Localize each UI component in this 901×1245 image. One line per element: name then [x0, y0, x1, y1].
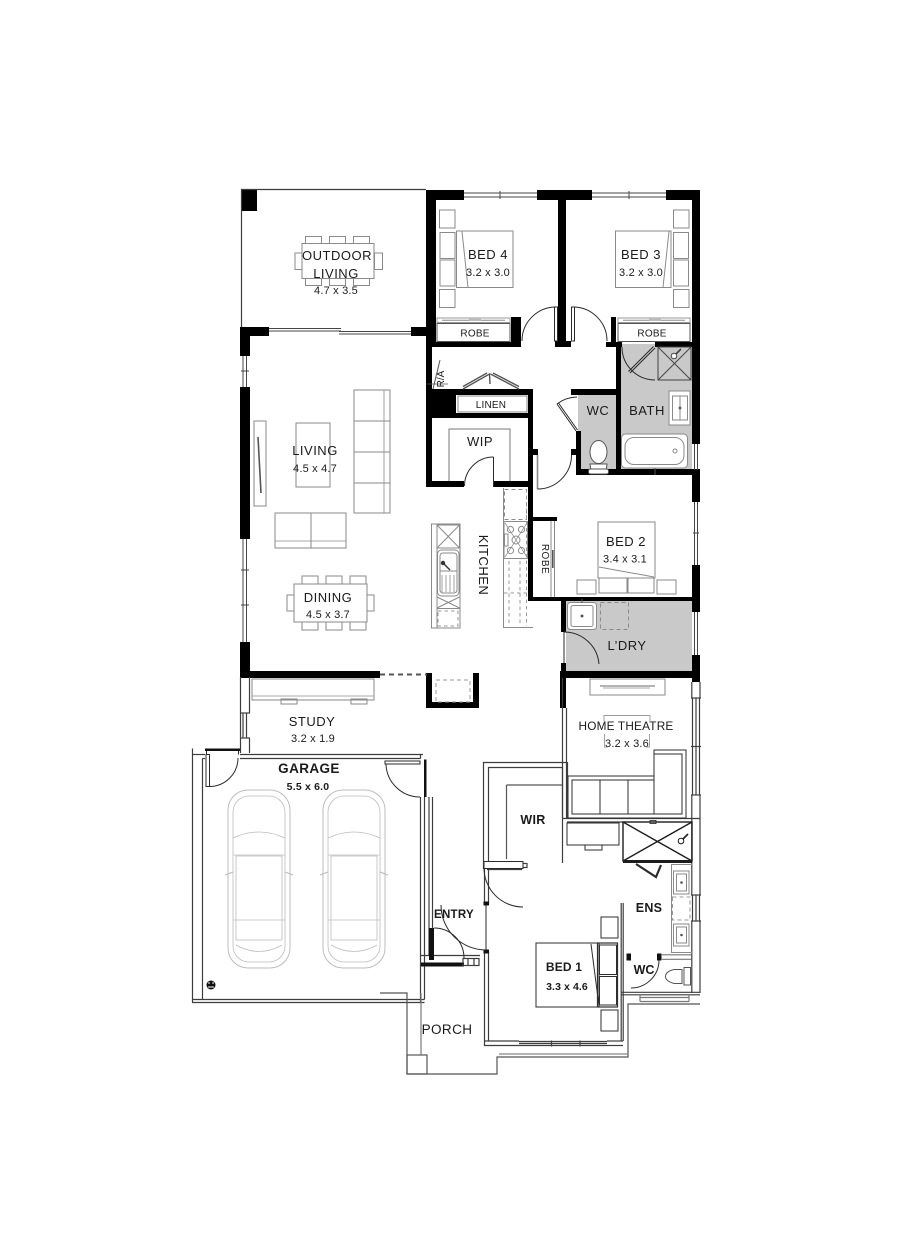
svg-text:ENS: ENS	[636, 901, 663, 915]
svg-text:4.5 x 4.7: 4.5 x 4.7	[293, 463, 337, 475]
svg-text:L’DRY: L’DRY	[607, 638, 646, 653]
svg-text:WIP: WIP	[467, 434, 493, 449]
svg-text:WC: WC	[587, 403, 610, 418]
svg-text:BED 3: BED 3	[621, 247, 661, 262]
svg-text:ROBE: ROBE	[460, 329, 489, 340]
svg-text:ROBE: ROBE	[539, 544, 550, 574]
svg-text:3.2 x 3.0: 3.2 x 3.0	[619, 267, 663, 279]
svg-text:3.2 x 3.6: 3.2 x 3.6	[605, 738, 649, 750]
svg-text:LINEN: LINEN	[476, 400, 506, 411]
svg-text:WIR: WIR	[520, 813, 545, 827]
svg-text:PORCH: PORCH	[422, 1022, 473, 1037]
svg-text:BED 1: BED 1	[546, 960, 582, 974]
svg-text:5.5 x 6.0: 5.5 x 6.0	[287, 781, 330, 793]
svg-text:3.2 x 1.9: 3.2 x 1.9	[291, 733, 335, 745]
svg-text:R/A: R/A	[436, 370, 447, 387]
svg-text:3.3 x 4.6: 3.3 x 4.6	[546, 981, 588, 993]
svg-text:ROBE: ROBE	[637, 329, 666, 340]
svg-text:3.4 x 3.1: 3.4 x 3.1	[603, 554, 647, 566]
svg-text:STUDY: STUDY	[289, 714, 336, 729]
svg-text:GARAGE: GARAGE	[278, 761, 340, 776]
svg-text:HOME THEATRE: HOME THEATRE	[578, 719, 673, 733]
svg-text:4.7 x 3.5: 4.7 x 3.5	[314, 285, 358, 297]
svg-text:BED 2: BED 2	[606, 534, 646, 549]
svg-text:DINING: DINING	[304, 590, 353, 605]
svg-text:3.2 x 3.0: 3.2 x 3.0	[466, 267, 510, 279]
svg-text:ENTRY: ENTRY	[434, 909, 474, 921]
svg-text:4.5 x 3.7: 4.5 x 3.7	[306, 609, 350, 621]
svg-text:OUTDOOR: OUTDOOR	[302, 248, 372, 263]
svg-text:BED 4: BED 4	[468, 247, 508, 262]
svg-text:BATH: BATH	[629, 403, 665, 418]
svg-text:WC: WC	[634, 963, 655, 977]
svg-text:KITCHEN: KITCHEN	[476, 535, 491, 596]
svg-text:LIVING: LIVING	[292, 443, 338, 458]
svg-text:LIVING: LIVING	[313, 266, 359, 281]
